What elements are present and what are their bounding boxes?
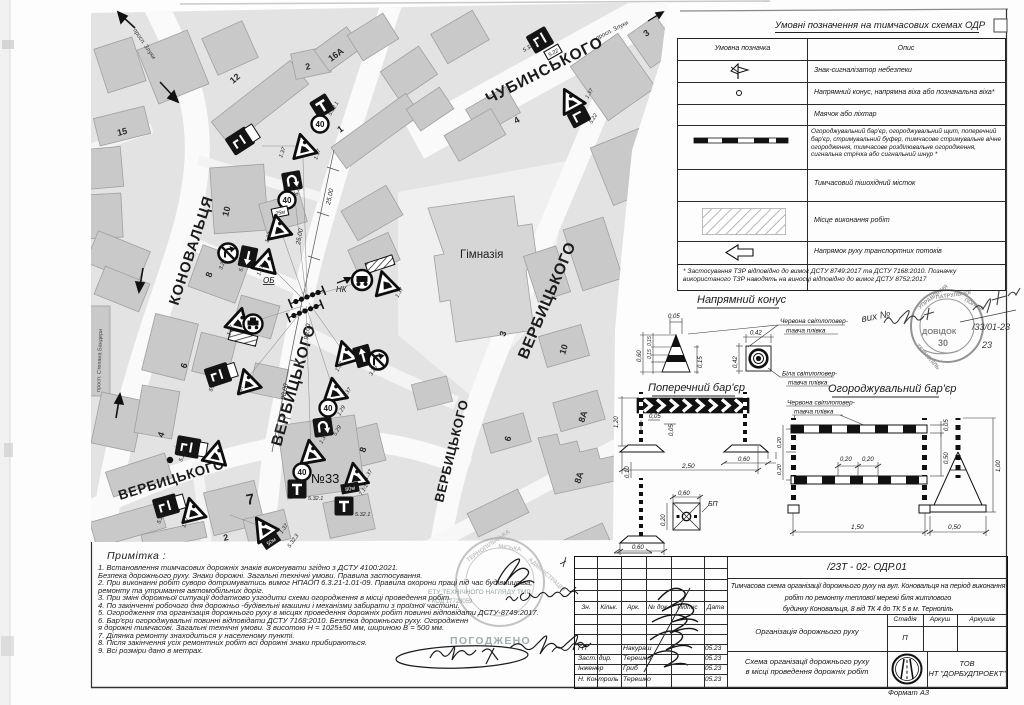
svg-text:0,20: 0,20: [862, 457, 874, 463]
svg-text:1,20: 1,20: [614, 416, 620, 428]
svg-text:МІСЬКА: МІСЬКА: [498, 544, 523, 553]
svg-text:0,15: 0,15: [647, 336, 653, 346]
svg-text:/33/01-23: /33/01-23: [971, 322, 1010, 332]
svg-text:Червона світлоповер-: Червона світлоповер-: [787, 399, 856, 407]
svg-text:40: 40: [298, 468, 307, 477]
svg-text:0,20: 0,20: [840, 457, 852, 463]
svg-text:0,60: 0,60: [637, 350, 643, 362]
svg-text:40: 40: [316, 120, 325, 129]
svg-text:0,05: 0,05: [944, 419, 950, 431]
svg-text:1,50: 1,50: [851, 524, 864, 531]
svg-text:0,15: 0,15: [698, 356, 704, 368]
svg-text:тавча плівка: тавча плівка: [794, 408, 834, 416]
svg-text:0,05: 0,05: [668, 314, 680, 320]
svg-text:тавча плівка: тавча плівка: [786, 327, 826, 335]
svg-text:30: 30: [938, 338, 948, 348]
svg-text:5.32.1: 5.32.1: [355, 512, 370, 518]
svg-text:0,42: 0,42: [733, 356, 739, 368]
svg-text:№33: №33: [311, 471, 339, 486]
svg-text:0,50: 0,50: [944, 452, 950, 464]
svg-text:тавча плівка: тавча плівка: [788, 379, 828, 387]
svg-text:1,00: 1,00: [996, 460, 1002, 472]
svg-text:ОБ: ОБ: [263, 276, 274, 285]
svg-text:2,50: 2,50: [681, 463, 695, 470]
svg-text:НК: НК: [336, 285, 348, 294]
svg-text:0,20: 0,20: [777, 463, 783, 475]
svg-text:0,50: 0,50: [948, 524, 961, 531]
svg-text:Біла світлоповер-: Біла світлоповер-: [782, 370, 838, 378]
svg-text:40: 40: [283, 196, 292, 205]
svg-text:ТЕРНОПІЛЬ: ТЕРНОПІЛЬ: [915, 343, 941, 371]
svg-text:5.32.1: 5.32.1: [308, 496, 323, 502]
svg-text:ДОВІДОК: ДОВІДОК: [922, 327, 957, 336]
svg-text:0,60: 0,60: [678, 491, 690, 497]
svg-text:0,05: 0,05: [649, 414, 661, 420]
svg-text:40: 40: [324, 404, 333, 413]
svg-text:0,42: 0,42: [750, 331, 762, 337]
svg-text:Червона світлоповер-: Червона світлоповер-: [780, 317, 849, 325]
svg-text:вих №: вих №: [861, 309, 892, 325]
svg-text:23: 23: [981, 340, 992, 350]
svg-text:Гімназія: Гімназія: [460, 249, 503, 261]
svg-text:БП: БП: [708, 501, 719, 508]
svg-text:0,10: 0,10: [625, 466, 631, 478]
svg-text:0,05: 0,05: [669, 424, 675, 436]
svg-text:0,60: 0,60: [632, 545, 644, 551]
svg-text:0,60: 0,60: [738, 457, 750, 463]
svg-text:0,15: 0,15: [647, 349, 653, 359]
svg-text:0,20: 0,20: [661, 514, 667, 526]
svg-text:0,20: 0,20: [777, 436, 783, 448]
svg-text:ПОЛІЦІЇ: ПОЛІЦІЇ: [963, 297, 985, 313]
